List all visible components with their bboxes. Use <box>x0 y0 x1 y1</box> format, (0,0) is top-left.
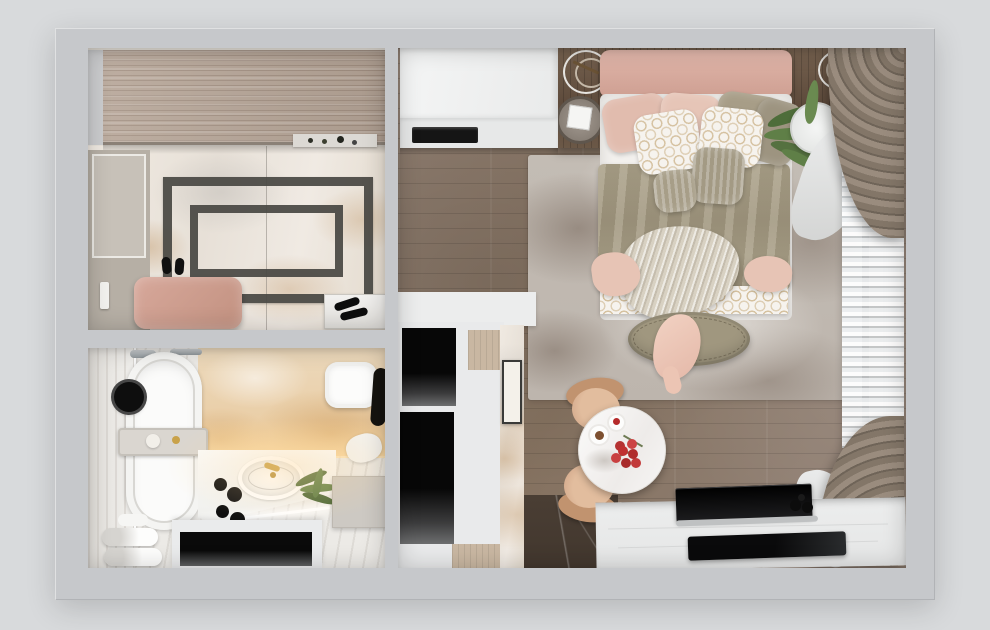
cosmetics <box>214 478 227 491</box>
towel-stack <box>118 514 148 526</box>
floor-inlay-frame-inner <box>190 205 343 277</box>
camera <box>790 500 801 511</box>
dining-table <box>578 406 666 494</box>
wardrobe <box>103 50 385 144</box>
wood-trim <box>468 330 502 370</box>
side-cabinet <box>332 476 385 528</box>
wood-trim <box>452 544 500 568</box>
room-hallway <box>88 48 385 330</box>
decor-ledge <box>293 134 377 147</box>
storage-niche <box>400 412 454 544</box>
bath-caddy <box>118 428 208 456</box>
pink-bench <box>134 277 242 329</box>
leaning-art <box>502 360 522 424</box>
toilet <box>325 362 377 408</box>
slipper <box>161 257 172 275</box>
sprig <box>623 435 643 448</box>
gold-faucet-base <box>270 472 276 478</box>
room-bathroom <box>88 348 385 568</box>
pillow-knit <box>652 168 698 214</box>
appliance-slot <box>412 127 478 143</box>
shower-head <box>114 382 144 412</box>
pillow-knit <box>690 146 746 205</box>
storage-niche <box>402 328 456 406</box>
caddy-gold-item <box>172 436 180 444</box>
counter-return <box>398 292 536 326</box>
ledge-decor <box>308 138 313 143</box>
shelf-opening <box>180 532 312 566</box>
floor-plan-stage <box>0 0 990 630</box>
tray-reflection <box>567 105 593 131</box>
slipper <box>174 258 184 276</box>
entry-door-panel <box>92 154 146 258</box>
caddy-soap <box>146 434 160 448</box>
door-handle <box>100 282 109 309</box>
berry-centerpiece <box>618 446 628 456</box>
bed-headboard <box>600 50 792 96</box>
dessert <box>613 418 620 425</box>
towel-roll <box>102 528 158 546</box>
wall-sliver <box>88 50 103 145</box>
coffee-cup <box>595 431 604 440</box>
room-living-bedroom <box>398 48 906 568</box>
towel-roll <box>104 548 162 566</box>
kitchen-upper-cabinet <box>400 48 558 118</box>
kitchen-shadow <box>400 148 558 155</box>
